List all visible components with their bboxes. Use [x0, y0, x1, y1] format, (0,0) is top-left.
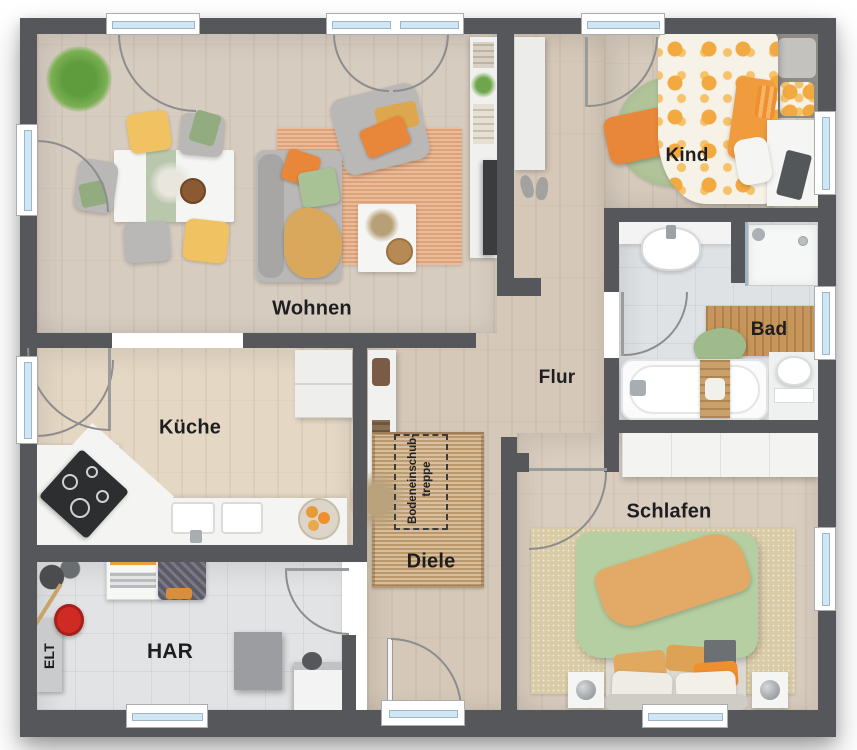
bathtub-caddy-towel: [705, 378, 725, 400]
window-left-wohnen: [16, 124, 38, 216]
room-label-wohnen: Wohnen: [272, 298, 352, 321]
room-label-kueche: Küche: [159, 417, 221, 440]
shelf-books-1: [473, 42, 494, 68]
window-top-wohnen-2: [326, 13, 464, 35]
wall-har-diele: [342, 635, 356, 710]
wall-kind-bad: [604, 208, 818, 222]
table-bowl: [180, 178, 206, 204]
tv-screen: [483, 160, 497, 255]
room-label-har: HAR: [147, 640, 193, 664]
storage-box-gray: [234, 632, 282, 690]
lamp-right: [760, 680, 780, 700]
toilet-tank: [774, 388, 814, 403]
sofa-back-cushion: [258, 154, 284, 278]
console-vase: [372, 358, 390, 386]
wall-kueche-diele: [353, 333, 367, 562]
lamp-left: [576, 680, 596, 700]
fruit-3: [308, 520, 319, 531]
sink-faucet: [190, 530, 202, 543]
sink-basin-right: [221, 502, 263, 534]
mop-bucket: [54, 604, 84, 636]
window-right-schlafen: [814, 527, 836, 611]
wall-flur-bad-south: [604, 358, 619, 472]
attic-stairs-label: Bodeneinschub- treppe: [406, 434, 434, 524]
wall-wohnen-flur: [497, 34, 514, 296]
attic-stairs-line1: Bodeneinschub-: [407, 434, 419, 524]
burner-3: [70, 498, 90, 518]
burner-4: [96, 490, 109, 503]
sofa-pillow-green: [297, 167, 341, 209]
laundry-towel-orange: [166, 588, 192, 599]
room-label-diele: Diele: [407, 551, 456, 574]
shower-glass: [745, 222, 748, 286]
room-label-flur: Flur: [539, 367, 576, 389]
room-label-kind: Kind: [665, 145, 708, 167]
wall-diele-schlafen: [501, 437, 517, 710]
wall-bad-schlafen: [604, 420, 818, 433]
wardrobe-schlafen: [622, 433, 818, 477]
shelf-plant: [471, 72, 496, 98]
plant-living: [46, 46, 112, 112]
bathtub-faucet: [630, 380, 646, 396]
wall-wohnen-flur-cap: [497, 278, 541, 296]
wall-diele-schlafen-jog: [501, 453, 529, 472]
bed-kind-pillow-gray: [778, 38, 816, 78]
chair-gray-south: [123, 220, 172, 263]
hall-cabinet: [514, 37, 545, 170]
attic-stairs-line2: treppe: [421, 461, 433, 496]
wall-kueche-har: [37, 545, 353, 562]
entrance-door-sill: [381, 700, 465, 726]
floor-plan: Wohnen Küche Flur Kind Bad Diele Schlafe…: [0, 0, 857, 750]
room-label-schlafen: Schlafen: [627, 501, 712, 524]
fruit-1: [306, 506, 318, 518]
window-top-kind: [581, 13, 665, 35]
room-label-elt: ELT: [41, 643, 57, 669]
shower-head: [752, 228, 765, 241]
coffee-table-plant: [364, 208, 400, 242]
wall-wohnen-kueche-west: [37, 333, 112, 348]
bed-kind-pillow-dotted: [780, 82, 814, 116]
burner-1: [62, 474, 78, 490]
bath-sink-faucet: [666, 225, 676, 239]
window-right-bad: [814, 286, 836, 360]
window-bottom-schlafen: [642, 704, 728, 728]
wall-bad-shower-stub: [731, 222, 745, 283]
chair-yellow-north: [125, 109, 172, 154]
bathtub-inner: [629, 365, 760, 414]
shelf-books-2: [473, 104, 494, 144]
shower-drain: [798, 236, 808, 246]
washer-detergent: [302, 652, 322, 670]
toilet-bowl: [776, 356, 812, 386]
door-leaf-schlafen: [529, 468, 607, 471]
window-bottom-har: [126, 704, 208, 728]
window-left-kueche: [16, 356, 38, 444]
rack-laundry-gray: [110, 572, 156, 588]
coffee-table-tray: [386, 238, 413, 265]
fridge-door-seam: [295, 383, 352, 385]
burner-2: [86, 466, 98, 478]
room-label-bad: Bad: [751, 319, 788, 341]
chair-yellow-south: [182, 218, 230, 264]
window-right-kind: [814, 111, 836, 195]
fruit-2: [318, 512, 330, 524]
window-top-wohnen-1: [106, 13, 200, 35]
